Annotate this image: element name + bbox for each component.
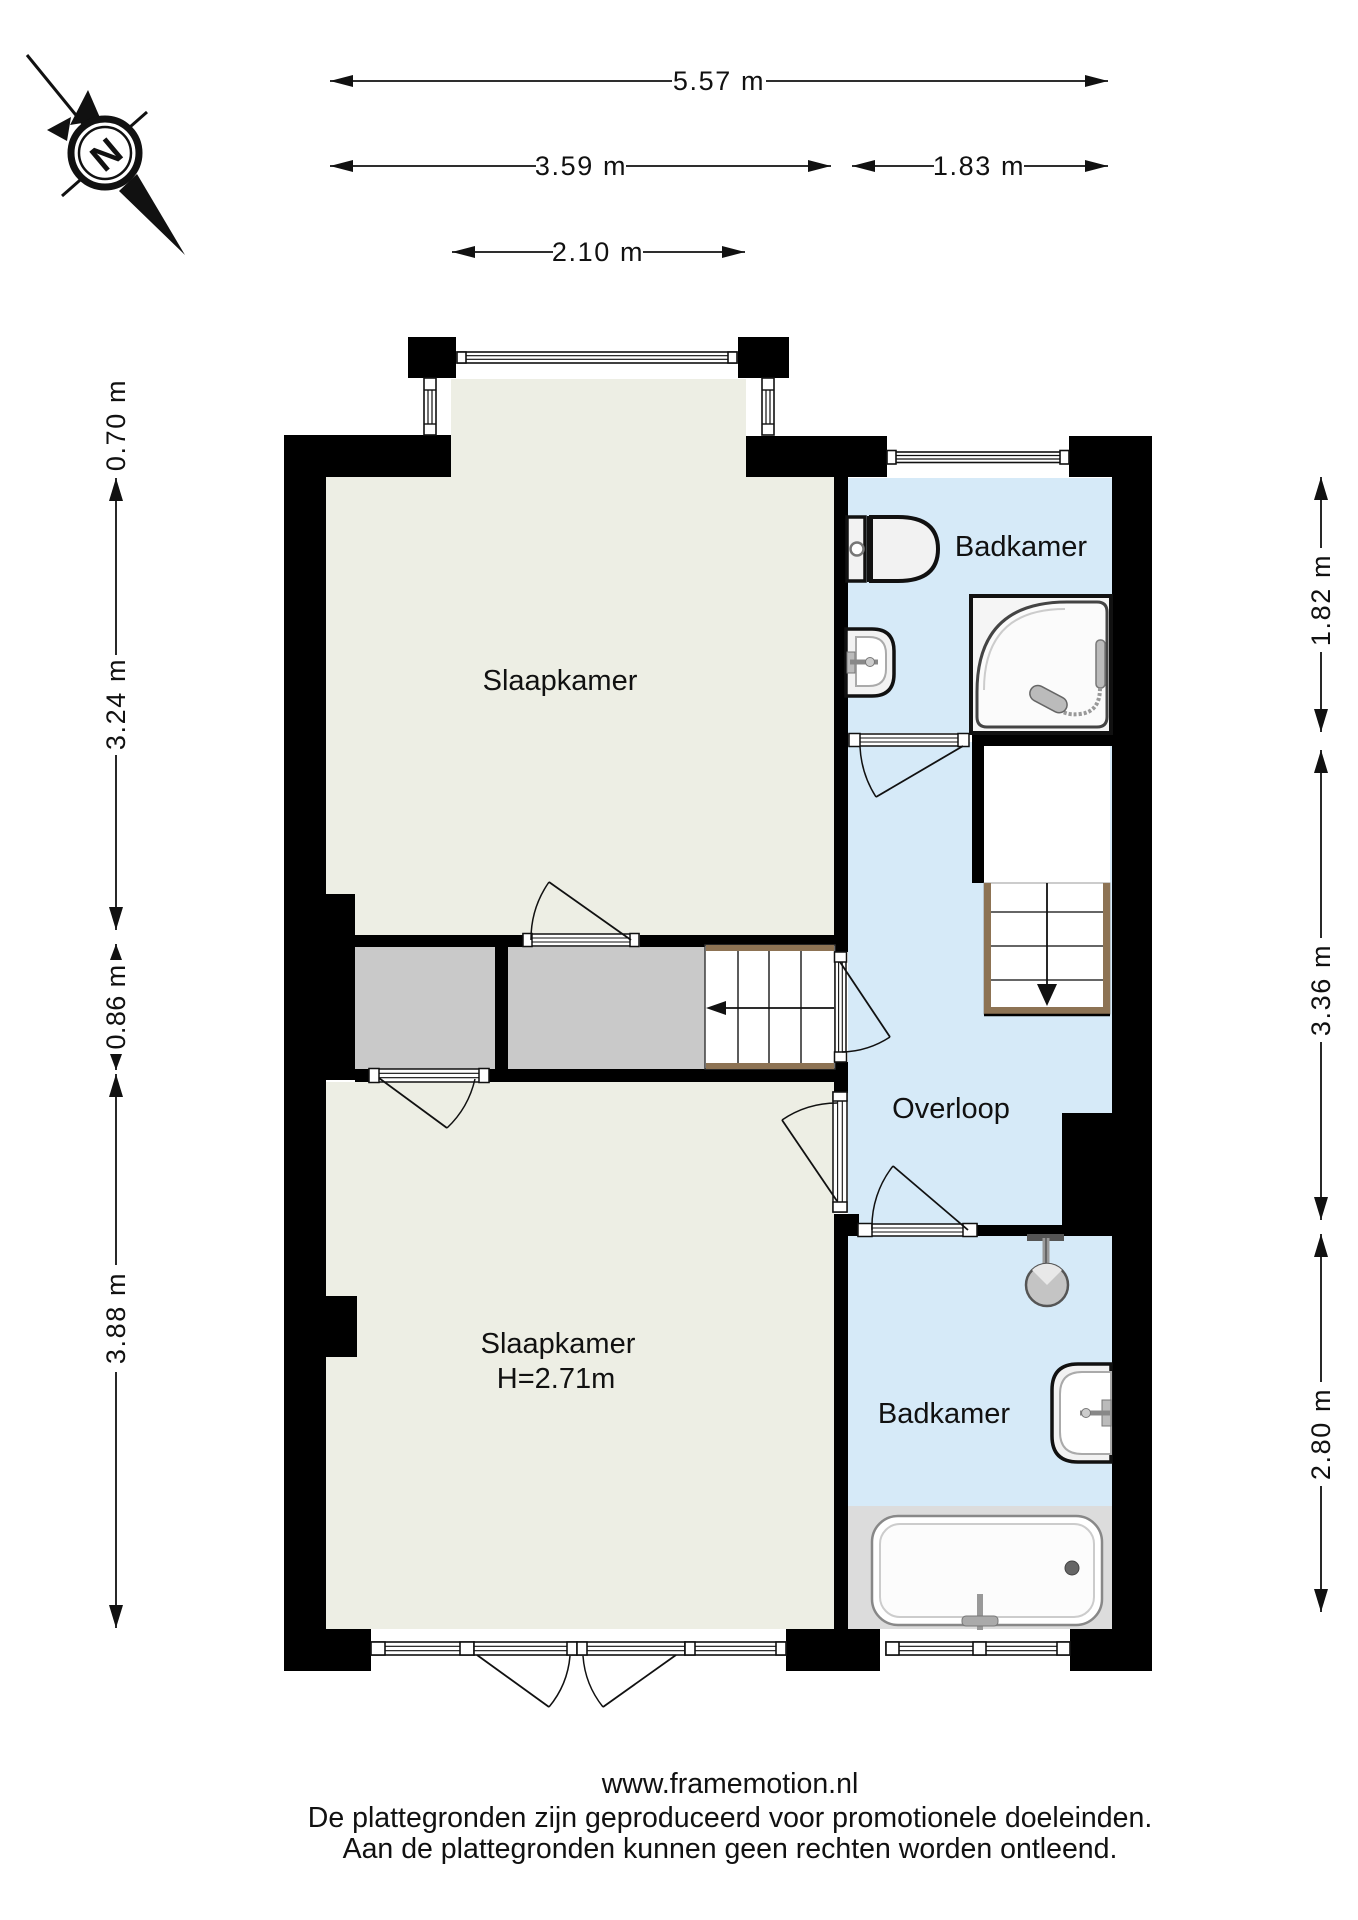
svg-text:H=2.71m: H=2.71m bbox=[497, 1363, 615, 1395]
svg-text:1.82 m: 1.82 m bbox=[1306, 554, 1336, 646]
svg-text:2.80 m: 2.80 m bbox=[1306, 1388, 1336, 1480]
svg-text:0.70 m: 0.70 m bbox=[101, 379, 131, 471]
svg-text:3.24 m: 3.24 m bbox=[101, 658, 131, 750]
svg-text:3.59 m: 3.59 m bbox=[535, 151, 627, 181]
svg-text:Badkamer: Badkamer bbox=[955, 531, 1088, 563]
svg-text:Aan de plattegronden kunnen ge: Aan de plattegronden kunnen geen rechten… bbox=[343, 1833, 1118, 1865]
svg-text:Overloop: Overloop bbox=[892, 1093, 1010, 1125]
svg-text:Badkamer: Badkamer bbox=[878, 1398, 1011, 1430]
svg-text:www.framemotion.nl: www.framemotion.nl bbox=[601, 1768, 859, 1800]
svg-text:1.83 m: 1.83 m bbox=[933, 151, 1025, 181]
svg-text:0.86 m: 0.86 m bbox=[101, 965, 131, 1050]
svg-text:Slaapkamer: Slaapkamer bbox=[481, 1328, 636, 1360]
svg-text:3.36 m: 3.36 m bbox=[1306, 944, 1336, 1036]
svg-text:2.10 m: 2.10 m bbox=[552, 237, 644, 267]
svg-text:5.57 m: 5.57 m bbox=[673, 66, 765, 96]
svg-text:Slaapkamer: Slaapkamer bbox=[483, 665, 638, 697]
svg-text:De plattegronden zijn geproduc: De plattegronden zijn geproduceerd voor … bbox=[308, 1802, 1153, 1834]
svg-text:3.88 m: 3.88 m bbox=[101, 1272, 131, 1364]
